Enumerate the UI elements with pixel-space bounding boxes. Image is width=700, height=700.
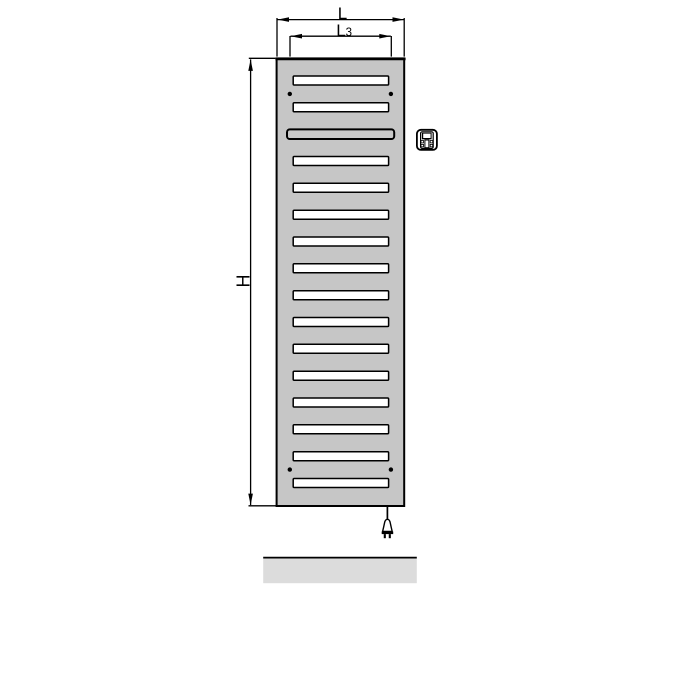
svg-text:H: H <box>234 275 254 288</box>
